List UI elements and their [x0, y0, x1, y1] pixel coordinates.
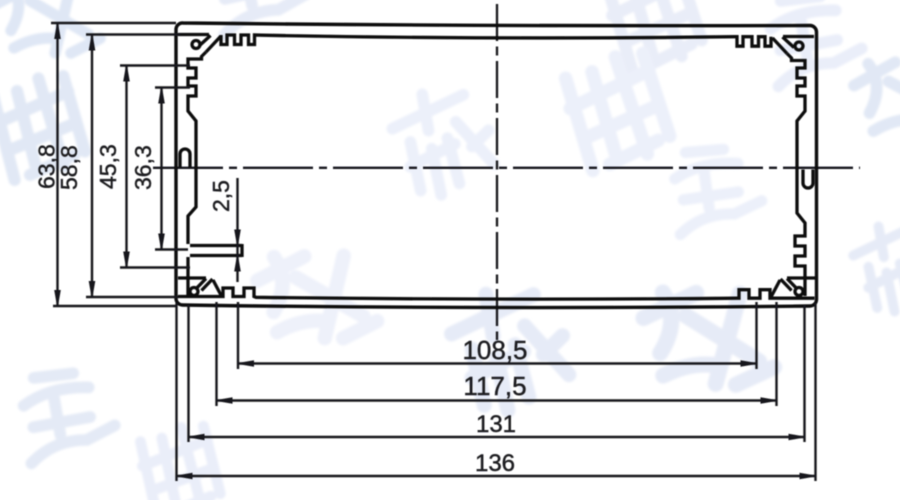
svg-text:2,5: 2,5	[208, 180, 234, 212]
svg-text:131: 131	[476, 411, 516, 438]
svg-text:36,3: 36,3	[130, 145, 156, 190]
svg-text:58,8: 58,8	[56, 145, 82, 190]
svg-text:136: 136	[475, 450, 515, 477]
svg-text:45,3: 45,3	[95, 144, 121, 189]
svg-text:108,5: 108,5	[462, 335, 527, 365]
svg-text:117,5: 117,5	[463, 371, 526, 401]
